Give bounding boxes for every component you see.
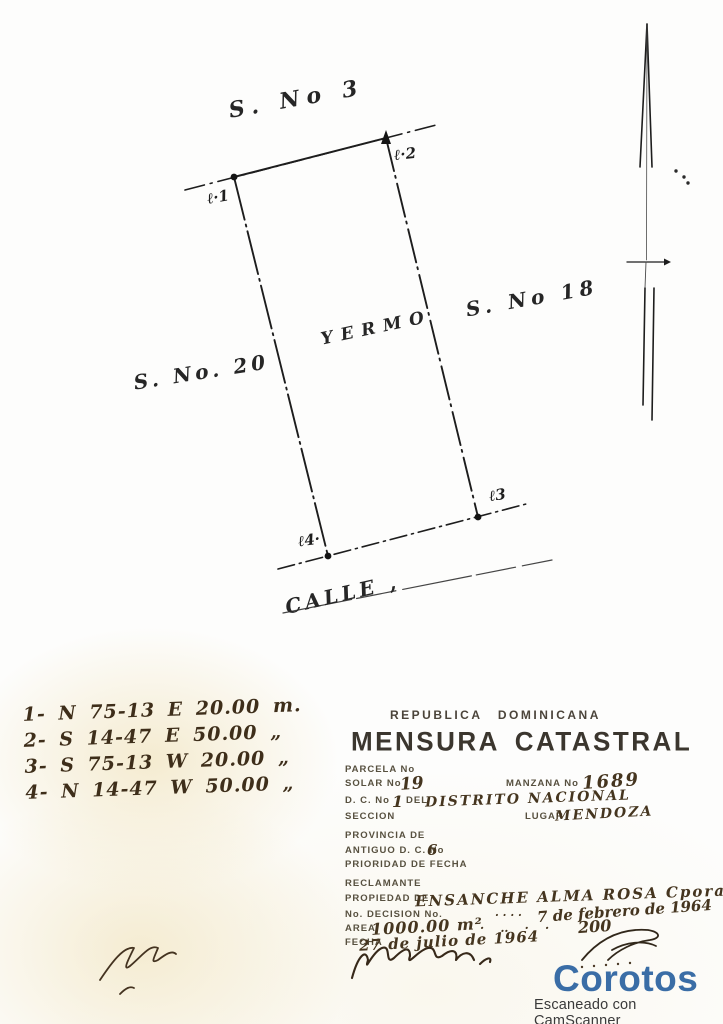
dc-value: 1: [392, 792, 403, 811]
reclamante-label: RECLAMANTE: [345, 878, 422, 889]
camscanner-note: Escaneado con CamScanner: [534, 997, 723, 1024]
provincia-label: PROVINCIA DE: [345, 830, 425, 841]
form-row-prioridad: PRIORIDAD DE FECHA: [345, 859, 723, 875]
form-country-heading: REPUBLICA DOMINICANA: [390, 708, 601, 722]
manzana-label: MANZANA No: [506, 778, 579, 789]
form-row-seccion: SECCION LUGAR MENDOZA: [345, 811, 723, 827]
signature-left: [100, 947, 176, 994]
corner-label-3: ℓ3: [488, 485, 507, 506]
corner-dot-1: [231, 174, 238, 181]
form-row-fecha: FECHA 27 de julio de 1964: [345, 937, 723, 953]
corner-label-2: ℓ·2: [393, 144, 417, 165]
dc-label: D. C. No: [345, 795, 390, 806]
north-arrow-crossbar-tip: [664, 259, 671, 266]
antiguo-value: 6: [427, 841, 437, 859]
form-row-provincia: PROVINCIA DE: [345, 830, 723, 846]
seccion-label: SECCION: [345, 811, 395, 822]
corotos-watermark-logo: Corotos: [553, 958, 698, 1000]
area-extra-value: 200: [577, 916, 612, 937]
form-title: MENSURA CATASTRAL: [351, 725, 692, 757]
form-row-dc: D. C. No 1 DEL DISTRITO NACIONAL: [345, 795, 723, 811]
parcela-label: PARCELA No: [345, 764, 415, 775]
parcel-edge-top: [234, 138, 386, 177]
corner-label-4: ℓ4·: [297, 530, 322, 552]
corner-label-1: ℓ·1: [206, 186, 231, 209]
north-arrow: [627, 24, 664, 420]
corner-dot-4: [325, 553, 332, 560]
corner-dot-3: [475, 514, 482, 521]
solar-label: SOLAR No: [345, 778, 402, 789]
prioridad-label: PRIORIDAD DE FECHA: [345, 859, 468, 870]
corner-monuments: [231, 130, 482, 559]
stray-ink-dots: [674, 169, 689, 184]
scanned-survey-document: S. No 3 S. No 18 S. No. 20 YERMO CALLE ,…: [0, 0, 723, 1024]
bearings-list: 1- N 75-13 E 20.00 m. 2- S 14-47 E 50.00…: [22, 692, 304, 806]
